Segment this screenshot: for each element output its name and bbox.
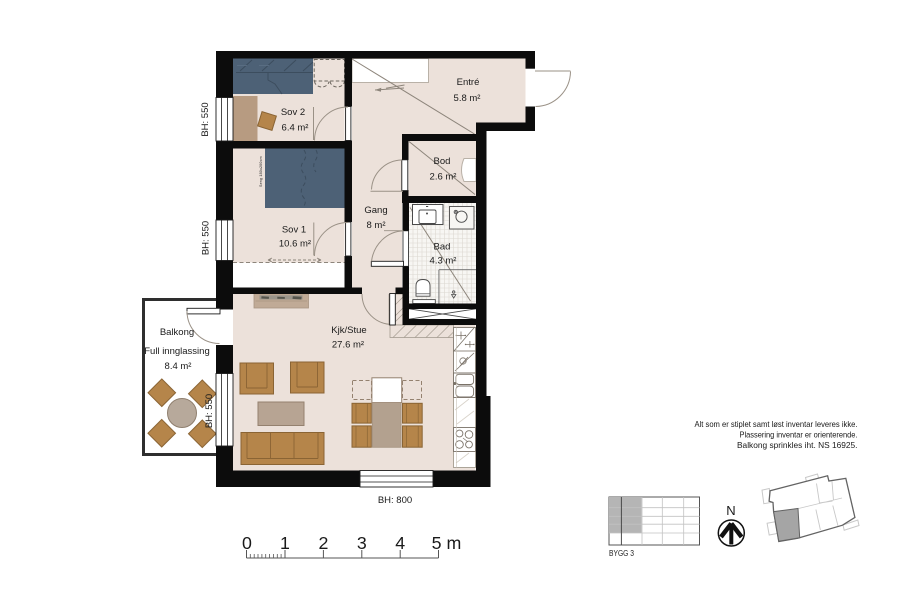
- svg-text:Bod: Bod: [434, 156, 451, 167]
- svg-text:4: 4: [395, 533, 405, 553]
- svg-text:0: 0: [242, 533, 252, 553]
- svg-text:10.6 m²: 10.6 m²: [279, 239, 311, 250]
- svg-text:8.4 m²: 8.4 m²: [165, 361, 192, 372]
- svg-text:BH: 550: BH: 550: [200, 102, 211, 136]
- svg-text:4.3 m²: 4.3 m²: [430, 256, 457, 267]
- svg-text:2.6 m²: 2.6 m²: [430, 172, 457, 183]
- svg-text:Balkong: Balkong: [160, 327, 194, 338]
- svg-text:5 m: 5 m: [432, 533, 462, 553]
- svg-text:Seng 180x200cm: Seng 180x200cm: [259, 156, 263, 187]
- svg-text:BH: 550: BH: 550: [204, 394, 215, 428]
- svg-text:Full innglassing: Full innglassing: [144, 346, 209, 357]
- svg-text:5.8 m²: 5.8 m²: [454, 93, 481, 104]
- svg-text:1: 1: [280, 533, 290, 553]
- svg-text:3: 3: [357, 533, 367, 553]
- svg-text:Gang: Gang: [364, 205, 387, 216]
- svg-text:BH: 550: BH: 550: [201, 221, 212, 255]
- svg-text:Kjk/Stue: Kjk/Stue: [331, 325, 366, 336]
- svg-text:8 m²: 8 m²: [367, 220, 386, 231]
- svg-text:Bad: Bad: [434, 242, 451, 253]
- svg-text:BYGG 3: BYGG 3: [609, 548, 634, 558]
- svg-text:2: 2: [318, 533, 328, 553]
- svg-text:Alt som er stiplet samt løst i: Alt som er stiplet samt løst inventar le…: [695, 419, 858, 429]
- svg-text:Sov 2: Sov 2: [281, 107, 305, 118]
- svg-text:Entré: Entré: [457, 77, 480, 88]
- svg-text:6.4 m²: 6.4 m²: [282, 123, 309, 134]
- svg-text:Balkong sprinkles iht. NS 1692: Balkong sprinkles iht. NS 16925.: [737, 440, 858, 450]
- svg-text:Plassering inventar er oriente: Plassering inventar er orienterende.: [740, 430, 858, 440]
- svg-text:N: N: [726, 503, 735, 518]
- svg-text:BH: 800: BH: 800: [378, 495, 412, 506]
- svg-text:27.6 m²: 27.6 m²: [332, 340, 364, 351]
- svg-text:Sov 1: Sov 1: [282, 225, 306, 236]
